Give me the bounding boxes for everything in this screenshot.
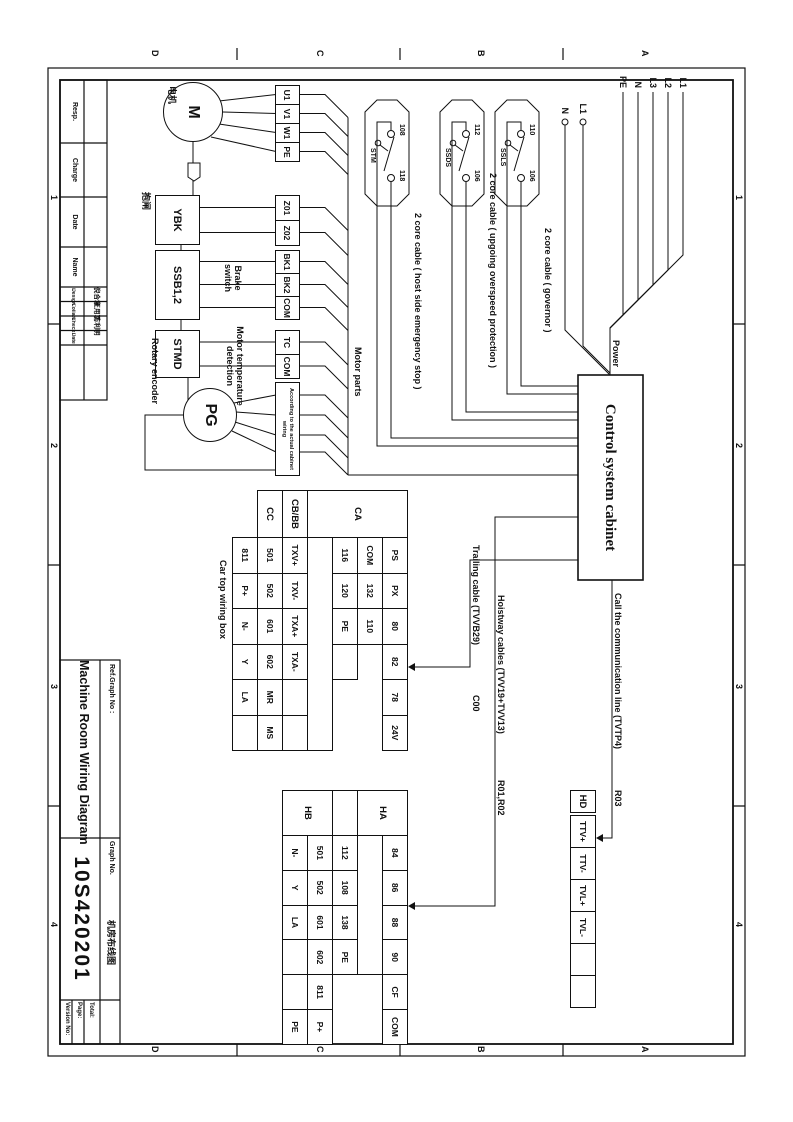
terminal-cell-hall: 601 xyxy=(307,905,333,941)
control-cabinet-label-wrap: Control system cabinet xyxy=(578,375,643,580)
terminal-cell-cartop: 24V xyxy=(382,715,408,752)
terminal-cell-cartop xyxy=(232,715,258,752)
terminal-cell-hall: CF xyxy=(382,974,408,1010)
ref-graph-no-label: Ref.Graph No : xyxy=(107,664,115,713)
brake-label-cn: 抱闸 xyxy=(141,192,151,210)
terminal-cell-hall: PE xyxy=(282,1009,308,1045)
terminal-cell-cartop: PE xyxy=(332,608,358,645)
trailing-cable-label: Trailing cable (TVVB29) xyxy=(471,545,481,645)
table-gap-cell-cartop xyxy=(307,537,333,751)
terminal-cell-hall: 811 xyxy=(307,974,333,1010)
terminal-cell-cartop: 78 xyxy=(382,679,408,716)
zone-number: 4 xyxy=(49,922,59,927)
zone-number: 3 xyxy=(734,684,744,689)
terminal-cell-hall: 138 xyxy=(332,905,358,941)
terminal-cell-cartop: PX xyxy=(382,573,408,610)
zone-letter: D xyxy=(150,50,160,57)
terminal-cell-hall: 88 xyxy=(382,905,408,941)
switch-cable-label: 2 core cable ( upgoing overspeed protect… xyxy=(488,173,498,368)
power-aux-label: N xyxy=(560,92,570,114)
sign-name: 方利明 xyxy=(93,316,100,331)
zone-letter: C xyxy=(315,50,325,57)
zone-number: 1 xyxy=(49,195,59,200)
sign-role: Date xyxy=(70,332,76,344)
zone-number: 3 xyxy=(49,684,59,689)
table-header-cartop: CB/BB xyxy=(282,490,308,538)
motor-temp-box: STMD xyxy=(155,330,200,378)
terminal-cell-hall: 501 xyxy=(307,835,333,871)
version-no-label: Version No: xyxy=(63,1002,70,1035)
encoder-terminal-box: According to the actual cabinet wiring xyxy=(275,382,300,476)
terminal-box-temp: TC xyxy=(275,330,300,355)
drawing-title-cn: 机房布线图 xyxy=(106,920,116,965)
terminal-cell-cartop: LA xyxy=(232,679,258,716)
zone-letter: A xyxy=(640,50,650,57)
terminal-cell-cartop: MR xyxy=(257,679,283,716)
terminal-cell-cartop: 601 xyxy=(257,608,283,645)
terminal-cell-cartop xyxy=(282,679,308,716)
switch-cable-label: 2 core cable ( governor ) xyxy=(543,228,553,333)
switch-terminal-no: 112 xyxy=(472,124,480,135)
brake-switch-box: SSB1,2 xyxy=(155,250,200,320)
sign-role: Collate xyxy=(70,303,76,315)
brake-switch-label: Brake switch xyxy=(222,255,243,301)
terminal-box-motor: W1 xyxy=(275,123,300,143)
terminal-cell-hall: 84 xyxy=(382,835,408,871)
terminal-cell-hall: 112 xyxy=(332,835,358,871)
zone-number: 2 xyxy=(734,443,744,448)
power-line-label: PE xyxy=(618,60,628,88)
terminal-cell-cartop: Y xyxy=(232,644,258,681)
page-label: Page: xyxy=(75,1002,82,1018)
switch-name: SSDS xyxy=(443,148,451,167)
table-header-cartop: CC xyxy=(257,490,283,538)
terminal-cell-cartop: N- xyxy=(232,608,258,645)
switch-terminal-no: 106 xyxy=(527,170,535,182)
terminal-cell-cartop: TXA+ xyxy=(282,608,308,645)
terminal-box-brake-switch: COM xyxy=(275,296,300,320)
switch-terminal-no: 106 xyxy=(472,170,480,182)
zone-number: 2 xyxy=(49,443,59,448)
table-header-cartop: CA xyxy=(307,490,408,538)
comm-line-label: Call the communication line (TVTP4) xyxy=(613,593,623,749)
comm-line-ref: R03 xyxy=(613,790,623,807)
terminal-cell-cartop: TXV- xyxy=(282,573,308,610)
sign-role: Check xyxy=(70,317,76,329)
terminal-cell-hall: 502 xyxy=(307,870,333,906)
total-label: Total: xyxy=(87,1002,94,1018)
terminal-cell-hall: COM xyxy=(382,1009,408,1045)
terminal-cell-cartop: 80 xyxy=(382,608,408,645)
drawing-sheet: Power Control system cabinet M 电机 YBK 抱闸… xyxy=(0,0,793,1122)
terminal-cell-cartop: PS xyxy=(382,537,408,574)
hd-strip-header: HD xyxy=(570,790,596,813)
switch-terminal-no: 118 xyxy=(397,170,405,181)
terminal-cell-hall xyxy=(282,939,308,975)
terminal-cell-cartop: P+ xyxy=(232,573,258,610)
power-line-label: N xyxy=(633,60,643,88)
hd-strip-cell: TVL- xyxy=(570,911,596,944)
motor-label-cn: 电机 xyxy=(167,86,177,104)
zone-number: 4 xyxy=(734,922,744,927)
terminal-cell-cartop: TXV+ xyxy=(282,537,308,574)
terminal-cell-cartop: 116 xyxy=(332,537,358,574)
terminal-cell-hall: 602 xyxy=(307,939,333,975)
name-label: Name xyxy=(70,247,78,287)
terminal-cell-cartop xyxy=(332,644,358,681)
power-feed-label: Power xyxy=(611,340,621,367)
hd-strip-cell: TVL+ xyxy=(570,879,596,912)
terminal-cell-hall: PE xyxy=(332,939,358,975)
power-line-label: L3 xyxy=(648,60,658,88)
brake-coil-box: YBK xyxy=(155,195,200,245)
terminal-cell-cartop: 110 xyxy=(357,608,383,645)
encoder-label: Rotary encoder xyxy=(150,338,160,404)
terminal-cell-cartop: MS xyxy=(257,715,283,752)
encoder-terminal-note: According to the actual cabinet wiring xyxy=(281,386,293,472)
terminal-cell-cartop: 82 xyxy=(382,644,408,681)
terminal-cell-cartop: 602 xyxy=(257,644,283,681)
terminal-box-brake-switch: BK1 xyxy=(275,250,300,274)
zone-letter: B xyxy=(476,1046,486,1053)
zone-letter: B xyxy=(476,50,486,57)
sign-name: 倪合章 xyxy=(93,287,100,302)
zone-letter: C xyxy=(315,1046,325,1053)
terminal-cell-cartop: 502 xyxy=(257,573,283,610)
table-gap-cell-hall xyxy=(357,835,383,975)
hd-strip-cell xyxy=(570,975,596,1008)
terminal-cell-hall: 90 xyxy=(382,939,408,975)
terminal-cell-cartop: COM xyxy=(357,537,383,574)
encoder-symbol: PG xyxy=(183,388,237,442)
terminal-cell-cartop: 132 xyxy=(357,573,383,610)
table-header-hall: HA xyxy=(357,790,408,836)
terminal-box-temp: COM xyxy=(275,354,300,379)
graph-no-label: Graph No. xyxy=(107,841,115,875)
terminal-box-brake: Z01 xyxy=(275,195,300,221)
date-label: Date xyxy=(70,197,78,247)
zone-number: 1 xyxy=(734,195,744,200)
terminal-box-motor: PE xyxy=(275,142,300,162)
car-top-box-caption: Car top wiring box xyxy=(218,560,228,639)
sign-name: 王用军 xyxy=(93,302,100,317)
control-cabinet-label: Control system cabinet xyxy=(602,403,620,553)
terminal-cell-hall: 108 xyxy=(332,870,358,906)
terminal-cell-cartop xyxy=(282,715,308,752)
switch-terminal-no: 108 xyxy=(397,124,405,136)
hd-strip-cell: TTV- xyxy=(570,847,596,880)
zone-letter: A xyxy=(640,1046,650,1053)
terminal-cell-hall xyxy=(282,974,308,1010)
terminal-cell-hall: 86 xyxy=(382,870,408,906)
sign-role: Design xyxy=(70,288,76,300)
drawing-title-en: Machine Room Wiring Diagram xyxy=(77,660,91,838)
hoistway-cable-label: Hoistway cables (TVV19+TVV13) xyxy=(496,595,506,734)
switch-cable-label: 2 core cable ( host side emergency stop … xyxy=(413,213,423,390)
terminal-cell-hall: Y xyxy=(282,870,308,906)
charge-label: Charge xyxy=(70,143,78,197)
terminal-cell-cartop: 120 xyxy=(332,573,358,610)
terminal-box-motor: V1 xyxy=(275,104,300,124)
terminal-cell-cartop: 501 xyxy=(257,537,283,574)
power-line-label: L1 xyxy=(678,60,688,88)
power-line-label: L2 xyxy=(663,60,673,88)
switch-name: SSLS xyxy=(498,148,506,166)
hd-strip-cell: TTV+ xyxy=(570,815,596,848)
terminal-cell-cartop: TXA- xyxy=(282,644,308,681)
switch-name: STM xyxy=(368,148,376,163)
zone-letter: D xyxy=(150,1046,160,1053)
hd-strip-cell xyxy=(570,943,596,976)
motor-parts-label: Motor parts xyxy=(353,347,363,397)
power-aux-label: L1 xyxy=(578,92,588,114)
terminal-cell-cartop: 811 xyxy=(232,537,258,574)
terminal-cell-hall: N- xyxy=(282,835,308,871)
table-header-hall: HB xyxy=(282,790,333,836)
trailing-cable-ref: C00 xyxy=(471,695,481,712)
terminal-box-brake: Z02 xyxy=(275,220,300,246)
terminal-box-motor: U1 xyxy=(275,85,300,105)
hoistway-cable-ref: R01,R02 xyxy=(496,780,506,816)
resp-label: Resp. xyxy=(70,80,78,143)
graph-no-value: 10S420201 xyxy=(69,838,93,1000)
switch-terminal-no: 110 xyxy=(527,124,535,135)
terminal-cell-hall: LA xyxy=(282,905,308,941)
terminal-box-brake-switch: BK2 xyxy=(275,273,300,297)
terminal-cell-hall: P+ xyxy=(307,1009,333,1045)
table-header-hall xyxy=(332,790,358,836)
